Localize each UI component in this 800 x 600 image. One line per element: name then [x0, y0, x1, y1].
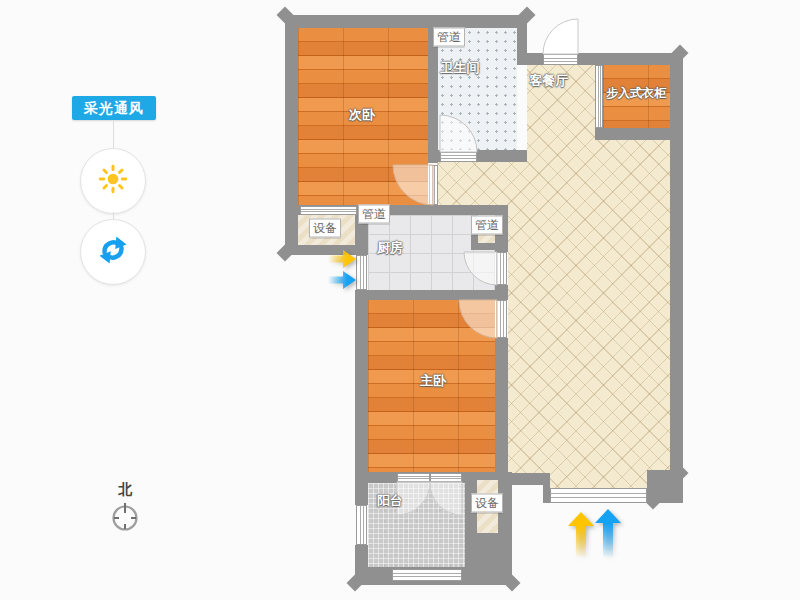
lighting-arrow-up-icon — [568, 512, 594, 558]
entrance-door-leaf — [543, 54, 578, 65]
room-label-kitchen: 厨房 — [377, 239, 403, 257]
tag-duct-right: 管道 — [471, 216, 503, 235]
room-label-bathroom: 卫生间 — [441, 59, 480, 77]
window — [392, 569, 462, 581]
ventilation-arrow-up-icon — [595, 509, 621, 558]
sun-lighting-button[interactable] — [80, 148, 146, 214]
room-label-master-bedroom: 主卧 — [420, 372, 446, 390]
floorplan-viewer: 采光通风 — [0, 0, 800, 600]
window — [356, 505, 367, 545]
lighting-arrow-right-icon — [328, 249, 356, 269]
refresh-icon — [95, 232, 131, 272]
balcony-slider-leaf — [430, 473, 462, 482]
window — [300, 206, 357, 215]
wall — [647, 470, 683, 503]
window — [356, 255, 367, 290]
balcony-slider-leaf — [397, 473, 430, 482]
secondary-bedroom-door-leaf — [429, 165, 438, 205]
wall — [355, 290, 508, 300]
window — [550, 488, 647, 503]
wall — [578, 53, 683, 65]
ventilation-refresh-button[interactable] — [80, 219, 146, 285]
wall — [355, 483, 368, 505]
compass-icon — [110, 502, 140, 536]
wall — [517, 53, 543, 65]
room-label-secondary-bedroom: 次卧 — [349, 106, 375, 124]
floorplan: 次卧 卫生间 客餐厅 步入式衣柜 厨房 主卧 阳台 管道 管道 管道 设备 设备 — [285, 15, 683, 585]
wall — [543, 473, 550, 503]
wall — [670, 53, 683, 473]
room-label-balcony: 阳台 — [377, 492, 403, 510]
master-bedroom-door-leaf — [496, 300, 507, 338]
ventilation-arrow-right-icon — [328, 270, 356, 290]
wall — [355, 300, 368, 472]
wall — [495, 338, 508, 473]
tag-equipment-bottom: 设备 — [471, 494, 503, 513]
compass-north-label: 北 — [118, 481, 132, 499]
bathroom-door-leaf — [440, 152, 477, 162]
connector-line — [113, 120, 114, 148]
closet-sliding-door — [595, 65, 603, 128]
lighting-ventilation-toggle-button[interactable]: 采光通风 — [72, 96, 156, 120]
wall — [477, 150, 527, 162]
wall — [285, 15, 298, 255]
wall — [355, 545, 368, 567]
room-label-walkin-closet: 步入式衣柜 — [606, 85, 666, 102]
room-label-living-dining: 客餐厅 — [530, 72, 569, 90]
sun-icon — [94, 160, 132, 202]
tag-equipment-top: 设备 — [309, 219, 341, 238]
tag-duct-middle: 管道 — [358, 205, 390, 224]
tag-duct-top: 管道 — [433, 28, 465, 47]
kitchen-door-leaf — [496, 252, 507, 285]
wall — [428, 150, 440, 162]
wall — [495, 285, 508, 298]
wall — [285, 15, 527, 28]
